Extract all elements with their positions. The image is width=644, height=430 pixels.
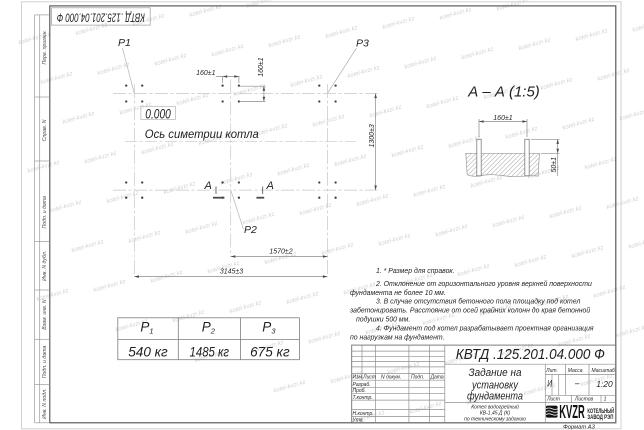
svg-text:забетонировать. Расстояние от: забетонировать. Расстояние от осей крайн… bbox=[349, 306, 590, 314]
svg-text:КВТД .125.201.04.000 Ф: КВТД .125.201.04.000 Ф bbox=[456, 346, 605, 363]
svg-text:Котел водогрейный: Котел водогрейный bbox=[471, 403, 519, 410]
svg-text:1: 1 bbox=[604, 397, 607, 403]
svg-text:675 кг: 675 кг bbox=[250, 344, 290, 360]
svg-text:А: А bbox=[204, 180, 212, 192]
svg-text:Разраб.: Разраб. bbox=[353, 382, 371, 388]
svg-text:Задание на: Задание на bbox=[469, 367, 522, 379]
svg-text:Н.контр.: Н.контр. bbox=[353, 411, 374, 417]
svg-text:фундамента не более 10 мм.: фундамента не более 10 мм. bbox=[350, 289, 446, 297]
svg-text:50±1: 50±1 bbox=[551, 157, 558, 173]
svg-text:1300±3: 1300±3 bbox=[369, 124, 376, 147]
svg-text:Лист: Лист bbox=[546, 397, 560, 403]
svg-text:Масштаб: Масштаб bbox=[592, 368, 616, 374]
svg-text:Перв. примен.: Перв. примен. bbox=[42, 30, 48, 64]
svg-text:1485 кг: 1485 кг bbox=[190, 344, 230, 360]
svg-text:И: И bbox=[547, 379, 552, 390]
svg-text:Инв. N подл.: Инв. N подл. bbox=[42, 389, 48, 419]
svg-text:3145±3: 3145±3 bbox=[220, 269, 243, 276]
svg-text:Р2: Р2 bbox=[244, 224, 257, 236]
svg-text:А – А (1:5): А – А (1:5) bbox=[467, 83, 539, 100]
svg-text:Подп.: Подп. bbox=[411, 375, 424, 381]
svg-text:Изм.Лист: Изм.Лист bbox=[353, 375, 377, 381]
svg-text:установку: установку bbox=[471, 379, 519, 391]
svg-text:КОТЕЛЬНЫЙ: КОТЕЛЬНЫЙ bbox=[587, 407, 614, 415]
svg-text:2. Отклонение от горизонтально: 2. Отклонение от горизонтального уровня … bbox=[375, 280, 592, 288]
svg-text:Ось симетрии котла: Ось симетрии котла bbox=[145, 127, 259, 141]
svg-text:А: А bbox=[266, 180, 274, 192]
svg-text:Утв.: Утв. bbox=[353, 418, 364, 424]
svg-text:Подп. и дата: Подп. и дата bbox=[42, 346, 48, 379]
svg-text:по техническому заданию: по техническому заданию bbox=[464, 416, 526, 422]
svg-text:Дата: Дата bbox=[430, 375, 444, 381]
svg-text:фундамента: фундамента bbox=[467, 391, 523, 403]
svg-text:160±1: 160±1 bbox=[258, 57, 265, 77]
svg-text:160±1: 160±1 bbox=[493, 115, 513, 122]
svg-text:Взам. инв. N: Взам. инв. N bbox=[42, 299, 48, 329]
svg-text:Р3: Р3 bbox=[356, 37, 369, 49]
svg-text:Т.контр.: Т.контр. bbox=[353, 395, 373, 401]
svg-text:–: – bbox=[574, 379, 580, 388]
svg-text:по нагрузкам на фундамент.: по нагрузкам на фундамент. bbox=[350, 334, 445, 342]
svg-text:Проб.: Проб. bbox=[353, 388, 366, 394]
svg-text:Инв. N дубл.: Инв. N дубл. bbox=[42, 251, 48, 281]
svg-text:ЗАВОД РЭП: ЗАВОД РЭП bbox=[587, 415, 613, 421]
svg-text:Подп. и дата: Подп. и дата bbox=[42, 196, 48, 229]
svg-text:160±1: 160±1 bbox=[196, 70, 216, 77]
svg-text:N докум.: N докум. bbox=[381, 375, 401, 381]
svg-text:540 кг: 540 кг bbox=[128, 344, 168, 360]
svg-text:1:20: 1:20 bbox=[596, 379, 613, 389]
svg-text:Лит.: Лит. bbox=[545, 368, 558, 374]
svg-text:Справ. N: Справ. N bbox=[42, 119, 48, 141]
svg-text:Масса: Масса bbox=[568, 368, 583, 374]
svg-text:КВТД .125.201.04.000 Ф: КВТД .125.201.04.000 Ф bbox=[57, 11, 145, 23]
svg-text:Формат А3: Формат А3 bbox=[563, 424, 595, 430]
svg-text:4. Фундамент под котел разраба: 4. Фундамент под котел разрабатывает про… bbox=[376, 325, 594, 333]
svg-text:3. В случае отсутствия бетонно: 3. В случае отсутствия бетонного пола пл… bbox=[376, 298, 580, 306]
svg-text:1. * Размер для справок.: 1. * Размер для справок. bbox=[376, 267, 455, 275]
svg-text:KVZR: KVZR bbox=[559, 402, 585, 422]
svg-text:подушки 500 мм.: подушки 500 мм. bbox=[356, 316, 410, 324]
svg-text:1570±2: 1570±2 bbox=[269, 249, 292, 256]
svg-text:0.000: 0.000 bbox=[145, 106, 171, 122]
svg-text:Р1: Р1 bbox=[118, 37, 131, 49]
